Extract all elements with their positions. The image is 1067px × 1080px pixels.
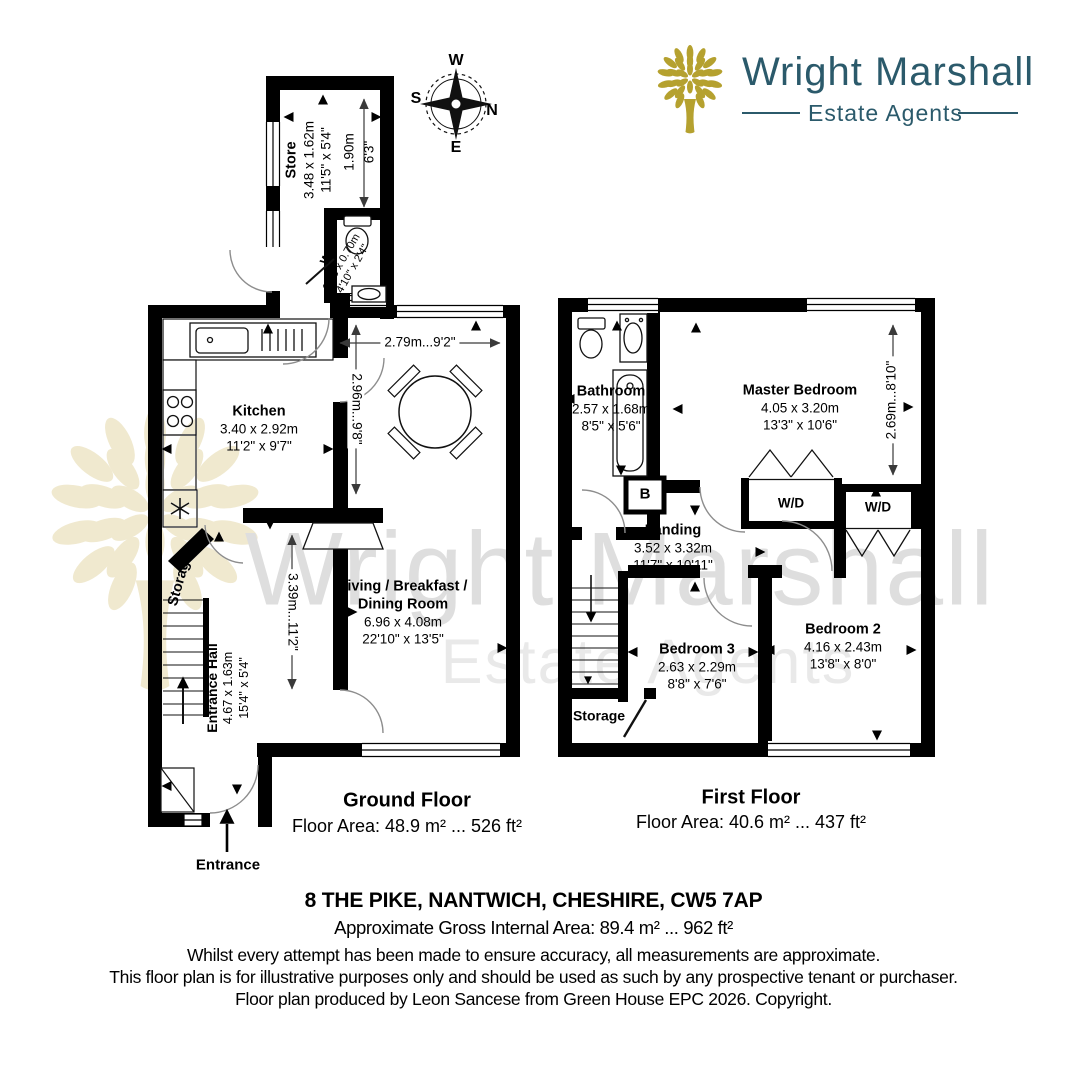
wardrobe-left — [741, 450, 842, 529]
hob-icon — [163, 390, 196, 435]
stairs-icon — [572, 575, 618, 684]
toilet-icon — [578, 318, 605, 358]
logo-tree-icon — [657, 45, 723, 133]
first-floor-plan — [558, 296, 935, 758]
floor-plan-page: W S N E Store 3.48 x 1.62m 11'5" x 5'4" … — [0, 0, 1067, 1080]
bathtub-icon — [613, 370, 647, 476]
compass-rose — [420, 68, 492, 140]
footer-disclaimer-1: Whilst every attempt has been made to en… — [0, 945, 1067, 966]
footer-credit: Floor plan produced by Leon Sancese from… — [0, 989, 1067, 1010]
footer-disclaimer-2: This floor plan is for illustrative purp… — [0, 967, 1067, 988]
stairs-icon — [163, 600, 203, 724]
logo-tagline-text: Estate Agents — [808, 100, 963, 127]
logo-rule-right — [958, 112, 1018, 114]
logo-rule-left — [742, 112, 800, 114]
fridge-icon — [163, 490, 197, 527]
toilet-icon — [344, 216, 371, 254]
footer-gross-area: Approximate Gross Internal Area: 89.4 m²… — [0, 917, 1067, 939]
ground-floor-plan — [148, 76, 520, 852]
hall-closet — [161, 768, 194, 812]
basin-icon — [620, 314, 647, 362]
sink-icon — [352, 286, 386, 302]
kitchen-sink-icon — [190, 323, 316, 357]
boiler-box — [626, 478, 664, 512]
footer-address: 8 THE PIKE, NANTWICH, CHESHIRE, CW5 7AP — [0, 889, 1067, 913]
dining-table-icon — [388, 365, 482, 459]
logo-brand-text: Wright Marshall — [742, 50, 1034, 95]
